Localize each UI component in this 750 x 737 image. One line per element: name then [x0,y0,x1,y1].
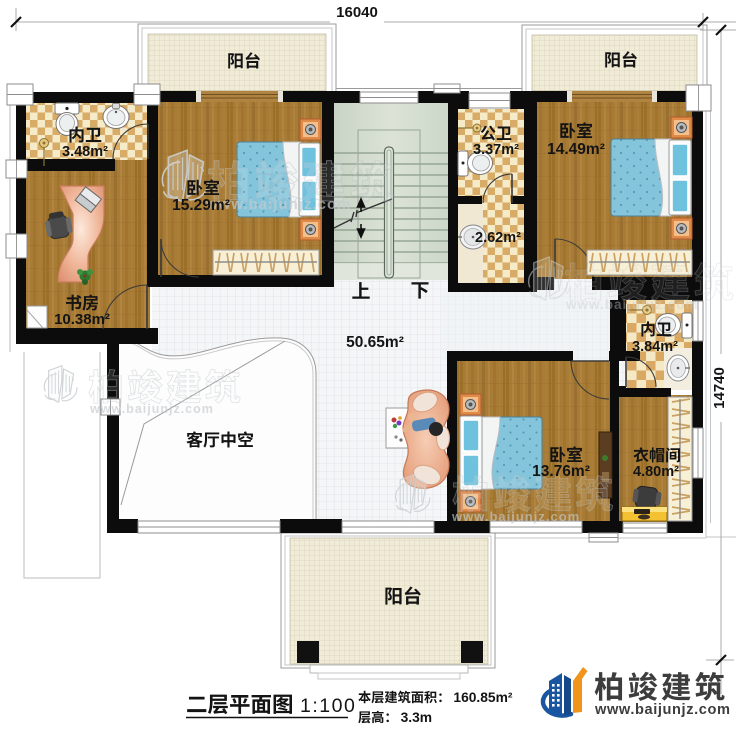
svg-text:3.84m²: 3.84m² [632,339,678,355]
svg-text:4.80m²: 4.80m² [633,464,679,480]
svg-text:www.baijunjz.com: www.baijunjz.com [89,402,214,416]
svg-text:www.baijunjz.com: www.baijunjz.com [565,297,699,312]
svg-text:13.76m²: 13.76m² [532,463,590,480]
svg-text:14740: 14740 [711,367,728,409]
svg-text:10.38m²: 10.38m² [54,311,110,328]
svg-text:16040: 16040 [336,4,378,21]
svg-text:1:100: 1:100 [300,695,356,717]
svg-text:14.49m²: 14.49m² [547,141,605,158]
svg-text:15.29m²: 15.29m² [172,197,230,214]
svg-text:50.65m²: 50.65m² [346,334,404,351]
svg-text:160.85m²: 160.85m² [453,690,512,705]
svg-text:3.48m²: 3.48m² [62,144,108,160]
svg-text:www.baijunjz.com: www.baijunjz.com [594,702,731,718]
svg-text:www.baijunjz.com: www.baijunjz.com [451,509,580,524]
svg-text:3.3m: 3.3m [401,710,432,725]
svg-text:3.37m²: 3.37m² [473,142,519,158]
svg-text:2.62m²: 2.62m² [475,230,521,246]
